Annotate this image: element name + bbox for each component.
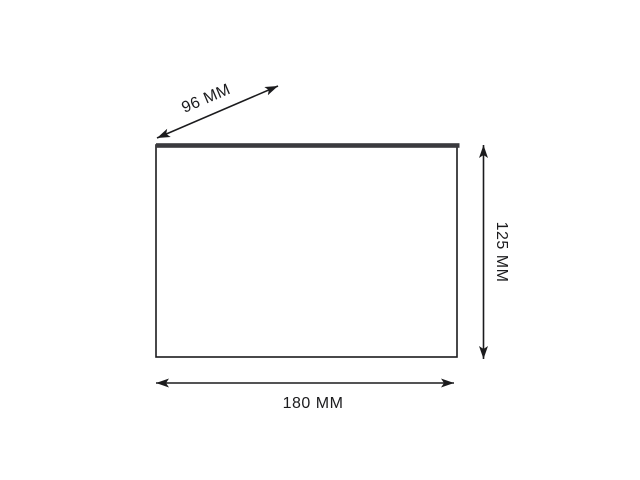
height-dimension-label: 125 MM <box>493 222 510 283</box>
panel-top-edge <box>156 143 460 148</box>
width-dimension: 180 MM <box>156 383 454 412</box>
panel-rectangle <box>156 145 457 357</box>
height-dimension: 125 MM <box>484 145 511 359</box>
depth-dimension: 96 MM <box>157 81 278 138</box>
width-dimension-label: 180 MM <box>283 395 344 412</box>
dimension-diagram: 96 MM 125 MM 180 MM <box>0 0 640 480</box>
depth-dimension-label: 96 MM <box>179 81 233 117</box>
diagram-canvas: 96 MM 125 MM 180 MM <box>0 0 640 480</box>
